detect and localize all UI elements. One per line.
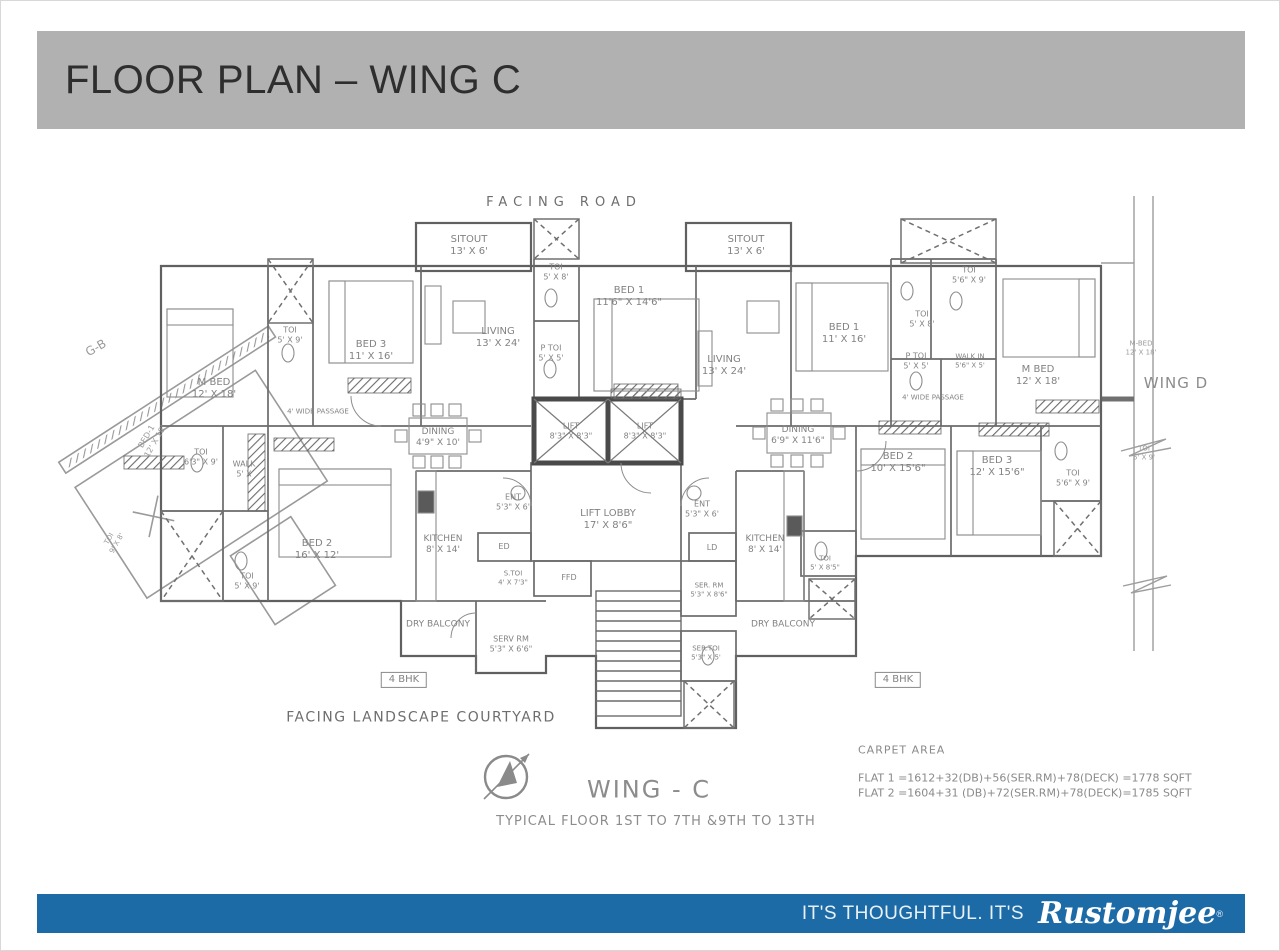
room-living-left: LIVING13' X 24' <box>476 326 520 350</box>
facing-road-label: FACING ROAD <box>486 195 642 211</box>
carpet-area-flat1: FLAT 1 =1612+32(DB)+56(SER.RM)+78(DECK) … <box>858 771 1192 784</box>
wing-d-mbed-label: M-BED12' X 18' <box>1126 339 1157 356</box>
room-ptoi-right: P TOI5' X 5' <box>903 351 928 371</box>
carpet-area-title: CARPET AREA <box>858 743 945 756</box>
floor-plan-slide: FLOOR PLAN – WING C <box>0 0 1280 951</box>
room-lift-1: LIFT8'3" X 8'3" <box>550 421 593 441</box>
room-toi-56x9-right-bottom: TOI5'6" X 9' <box>1056 468 1090 488</box>
room-toi-5x9-left-top: TOI5' X 9' <box>277 325 302 345</box>
wing-c-label: WING - C <box>587 775 711 804</box>
room-walkin-right: WALK IN5'6" X 5' <box>955 352 985 369</box>
room-ptoi-left: P TOI5' X 5' <box>538 343 563 363</box>
wing-b-label: G-B <box>83 336 109 359</box>
bhk-left-label: 4 BHK <box>381 672 427 688</box>
room-bed3-right: BED 312' X 15'6" <box>969 455 1024 479</box>
duct-ffd-label: FFD <box>561 573 576 583</box>
duct-ed-label: ED <box>498 542 509 552</box>
room-bed1-left: BED 111'6" X 14'6" <box>596 285 662 309</box>
room-mbed-right: M BED12' X 18' <box>1016 364 1060 388</box>
room-dining-left: DINING4'9" X 10' <box>416 427 460 449</box>
wing-d-label: WING D <box>1144 374 1208 392</box>
wing-d-toi-label: TOI5' X 9' <box>1133 444 1155 461</box>
room-dry-balcony-left: DRY BALCONY <box>406 620 470 631</box>
rustomjee-logo: Rustomjee <box>1038 899 1216 929</box>
room-bed2-left: BED 216' X 12' <box>295 538 339 562</box>
registered-mark: ® <box>1216 909 1223 919</box>
floor-plan-area: FACING ROADFACING LANDSCAPE COURTYARDWIN… <box>1 1 1280 951</box>
room-dining-right: DINING6'9" X 11'6" <box>771 425 825 447</box>
passage-left-label: 4' WIDE PASSAGE <box>287 408 349 417</box>
typical-floor-label: TYPICAL FLOOR 1ST TO 7TH &9TH TO 13TH <box>496 814 816 830</box>
wing-b-toi-label: TOI9' X 8' <box>100 527 126 555</box>
room-ser-rm-center: SER. RM5'3" X 8'6" <box>690 581 727 598</box>
room-toi-right-small: TOI5' X 8'5" <box>810 554 840 571</box>
passage-right-label: 4' WIDE PASSAGE <box>902 394 964 403</box>
wing-b-bed1-label: BED-112' X 18' <box>134 419 169 459</box>
room-kitchen-right: KITCHEN8' X 14' <box>746 534 785 556</box>
room-sitout-right: SITOUT13' X 6' <box>727 234 765 258</box>
room-serv-rm-left: SERV RM5'3" X 6'6" <box>490 634 533 654</box>
room-sitout-left: SITOUT13' X 6' <box>450 234 488 258</box>
room-ent-right: ENT5'3" X 6' <box>685 499 719 519</box>
room-ser-toi-center: SER.TOI5'3" X 5' <box>691 644 721 661</box>
carpet-area-flat2: FLAT 2 =1604+31 (DB)+72(SER.RM)+78(DECK)… <box>858 786 1192 799</box>
room-lift-lobby: LIFT LOBBY17' X 8'6" <box>580 508 636 532</box>
room-toi-5x9-left-bottom: TOI5' X 9' <box>234 571 259 591</box>
room-bed2-right: BED 210' X 15'6" <box>870 451 925 475</box>
room-ent-left: ENT5'3" X 6' <box>496 492 530 512</box>
room-walk-left: WALK5' X <box>233 459 256 479</box>
room-kitchen-left: KITCHEN8' X 14' <box>424 534 463 556</box>
room-stoi-left: S.TOI4' X 7'3" <box>498 569 528 586</box>
room-mbed-left: M BED12' X 18' <box>192 377 236 401</box>
room-toi-56x9-right-top: TOI5'6" X 9' <box>952 265 986 285</box>
bhk-right-label: 4 BHK <box>875 672 921 688</box>
plan-labels-layer: FACING ROADFACING LANDSCAPE COURTYARDWIN… <box>1 1 1280 951</box>
room-toi-top-left: TOI5' X 8' <box>543 262 568 282</box>
footer-brand-bar: IT'S THOUGHTFUL. IT'S Rustomjee ® <box>37 894 1245 933</box>
room-dry-balcony-right: DRY BALCONY <box>751 620 815 631</box>
room-bed3-left: BED 311' X 16' <box>349 339 393 363</box>
room-living-right: LIVING13' X 24' <box>702 354 746 378</box>
room-toi-5x8-right: TOI5' X 8' <box>909 309 934 329</box>
footer-tagline: IT'S THOUGHTFUL. IT'S <box>802 903 1024 925</box>
room-toi-63x9-left: TOI6'3" X 9' <box>184 447 218 467</box>
facing-courtyard-label: FACING LANDSCAPE COURTYARD <box>286 709 556 726</box>
duct-ld-label: LD <box>707 543 718 553</box>
room-bed1-right: BED 111' X 16' <box>822 322 866 346</box>
room-lift-2: LIFT8'3" X 8'3" <box>624 421 667 441</box>
